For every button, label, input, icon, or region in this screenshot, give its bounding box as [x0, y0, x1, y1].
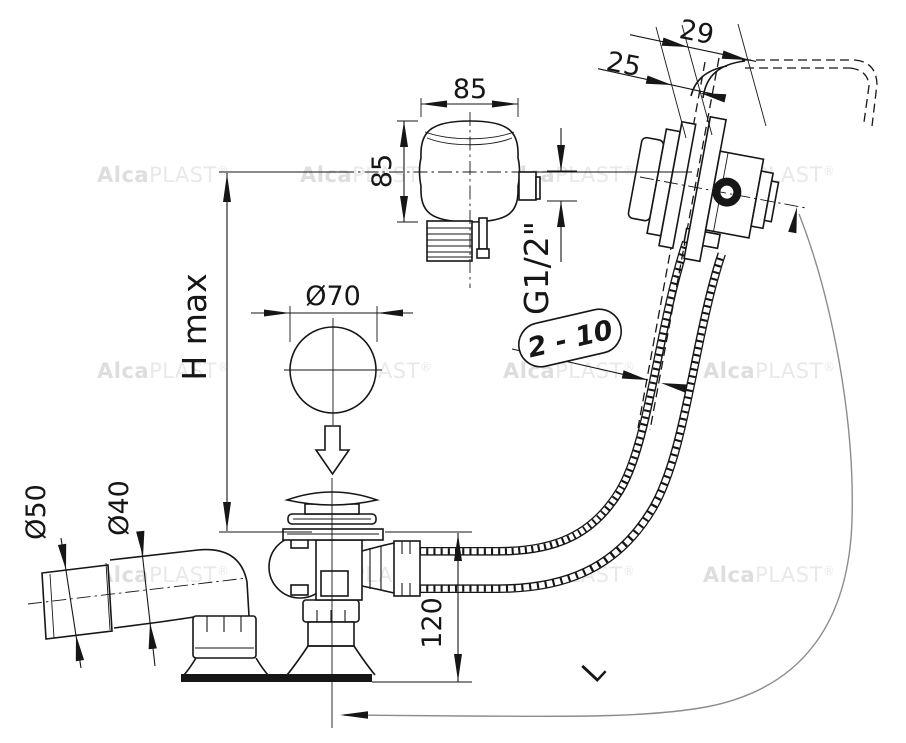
dim-hose-length-label: L — [576, 653, 613, 689]
clip-tab — [291, 585, 308, 595]
dim-install-height-label: 120 — [417, 597, 448, 649]
dim-plug-diameter-label: Ø70 — [305, 281, 361, 312]
dim-front-width-label: 85 — [453, 74, 487, 105]
drain-base-plate — [181, 674, 372, 682]
control-cable-pin — [479, 218, 487, 249]
drain-body — [269, 536, 420, 600]
technical-drawing-canvas: AlcaPLAST® AlcaPLAST® AlcaPLAST® AlcaPLA… — [0, 0, 906, 743]
dim-overflow-recess-label: 25 — [604, 46, 644, 83]
svg-text:AlcaPLAST®: AlcaPLAST® — [703, 359, 835, 383]
thread-port — [519, 172, 536, 200]
corrugated-hose — [419, 248, 704, 570]
dim-outlet-outer-label: Ø50 — [21, 484, 52, 540]
svg-text:AlcaPLAST®: AlcaPLAST® — [97, 163, 229, 187]
dim-overflow-depth-label: 29 — [677, 14, 717, 51]
dim-outlet-inner-label: Ø40 — [104, 480, 135, 536]
drain-plug-cap — [283, 492, 383, 540]
dim-front-height-label: 85 — [367, 154, 398, 188]
waste-drain-assembly — [28, 492, 420, 682]
bathtub-rim — [742, 60, 877, 126]
dim-height-max-label: H max — [175, 273, 214, 380]
brand-watermark: Alca — [97, 163, 149, 187]
threaded-stem — [427, 221, 472, 261]
waste-overflow-diagram: AlcaPLAST® AlcaPLAST® AlcaPLAST® AlcaPLA… — [0, 0, 906, 743]
svg-text:AlcaPLAST®: AlcaPLAST® — [97, 563, 229, 587]
hose-union-nut — [394, 541, 420, 596]
svg-text:AlcaPLAST®: AlcaPLAST® — [703, 563, 835, 587]
drain-washer-plate — [283, 529, 383, 540]
dim-thread-label: G1/2" — [517, 221, 556, 315]
flow-direction-arrow — [316, 426, 349, 474]
drain-tailpiece — [287, 600, 375, 675]
hose-length-arrow — [340, 711, 368, 719]
elbow-lock-nut — [184, 616, 268, 675]
